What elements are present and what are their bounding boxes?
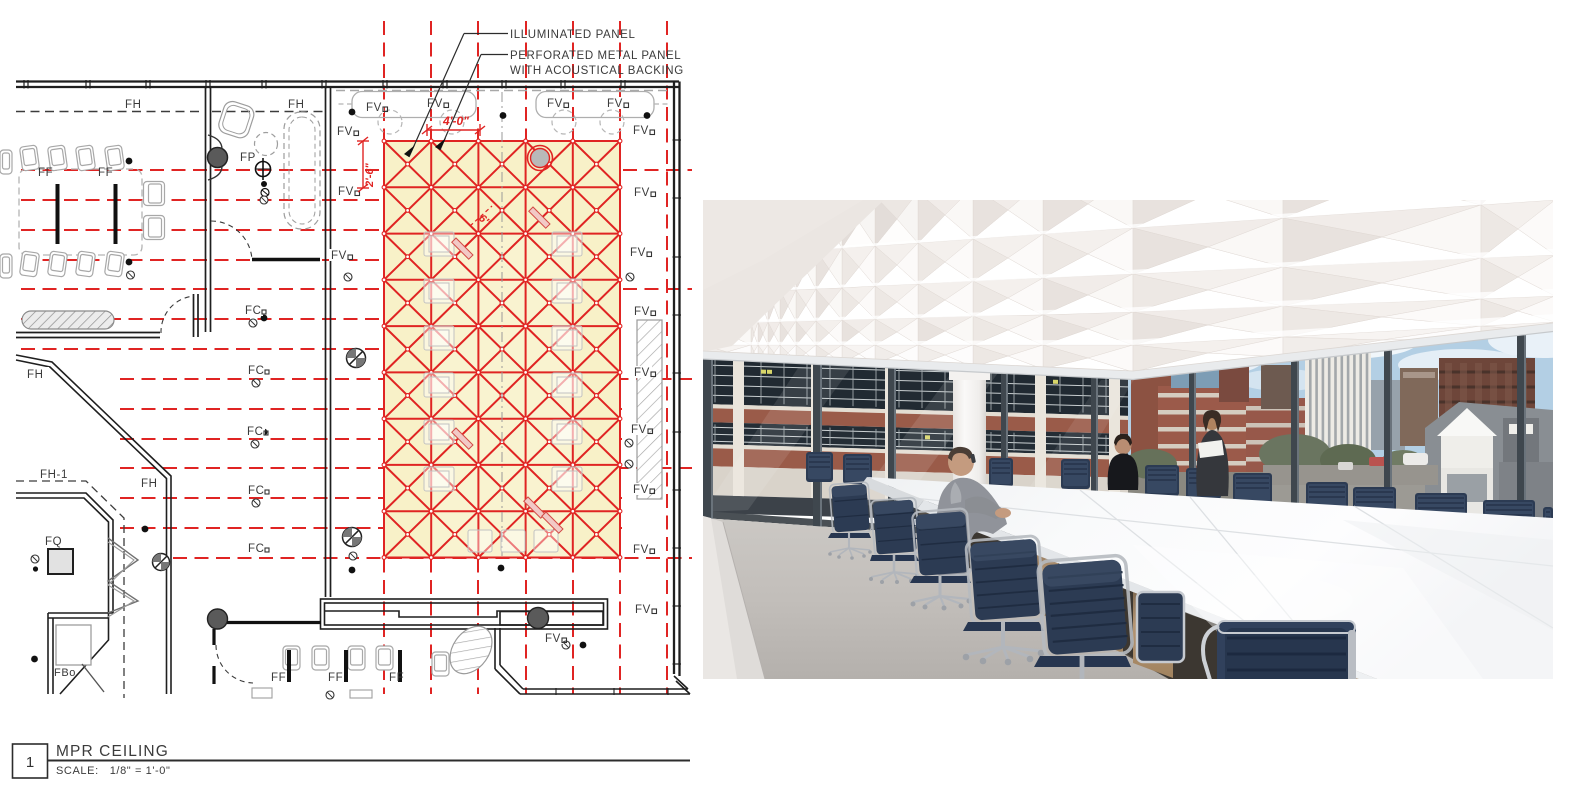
svg-text:FH: FH: [27, 369, 44, 381]
svg-text:FV: FV: [337, 126, 353, 138]
svg-text:PERFORATED METAL PANEL: PERFORATED METAL PANEL: [510, 50, 681, 62]
svg-text:MPR CEILING: MPR CEILING: [56, 743, 169, 760]
svg-text:ILLUMINATED PANEL: ILLUMINATED PANEL: [510, 29, 635, 41]
svg-text:WITH ACOUSTICAL BACKING: WITH ACOUSTICAL BACKING: [510, 65, 684, 77]
svg-text:FC: FC: [245, 305, 262, 317]
svg-text:FC: FC: [247, 426, 264, 438]
svg-text:2'-6": 2'-6": [364, 162, 376, 188]
svg-text:FV: FV: [633, 484, 649, 496]
svg-text:FV: FV: [545, 633, 561, 645]
svg-text:FH: FH: [141, 478, 158, 490]
svg-text:FV: FV: [634, 306, 650, 318]
svg-text:FF: FF: [38, 167, 53, 179]
svg-text:FV: FV: [547, 98, 563, 110]
svg-text:FC: FC: [248, 365, 265, 377]
svg-text:FF: FF: [98, 167, 113, 179]
svg-text:FV: FV: [634, 367, 650, 379]
svg-text:FBo: FBo: [54, 667, 76, 679]
svg-text:FV: FV: [607, 98, 623, 110]
svg-text:FV: FV: [630, 247, 646, 259]
svg-text:SCALE: 1/8" = 1'-0": SCALE: 1/8" = 1'-0": [56, 765, 171, 777]
svg-text:FV: FV: [635, 604, 651, 616]
svg-text:FH: FH: [288, 99, 305, 111]
svg-text:FV: FV: [633, 125, 649, 137]
svg-text:FV: FV: [633, 544, 649, 556]
svg-text:FF: FF: [271, 672, 286, 684]
svg-text:FV: FV: [634, 187, 650, 199]
svg-text:FC: FC: [248, 485, 265, 497]
svg-text:1: 1: [26, 754, 34, 771]
svg-text:FV: FV: [331, 250, 347, 262]
svg-text:FP: FP: [240, 152, 256, 164]
svg-text:FV: FV: [366, 102, 382, 114]
svg-text:FF: FF: [389, 672, 404, 684]
svg-text:FV: FV: [338, 186, 354, 198]
svg-text:FC: FC: [248, 543, 265, 555]
svg-text:FF: FF: [328, 672, 343, 684]
svg-text:FH: FH: [125, 99, 142, 111]
svg-text:4'-0": 4'-0": [442, 114, 469, 128]
svg-text:FH-1: FH-1: [40, 469, 68, 481]
svg-text:FV: FV: [631, 424, 647, 436]
svg-text:FQ: FQ: [45, 536, 62, 548]
